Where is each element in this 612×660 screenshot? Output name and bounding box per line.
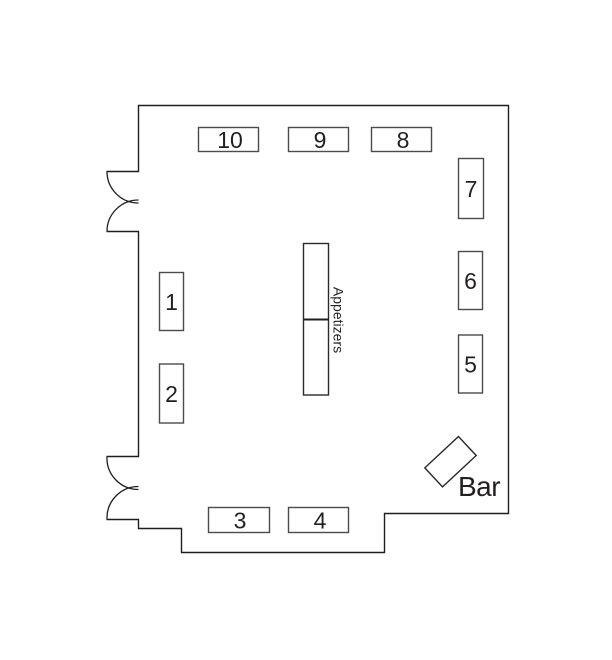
door-lower-left: [107, 457, 139, 520]
door-upper-left-bottom-leaf-arc: [107, 200, 139, 232]
table-7: 7: [459, 159, 484, 219]
table-5-label: 5: [464, 351, 477, 377]
door-upper-left: [107, 172, 139, 232]
floor-plan: 10 9 8 7 6 5 1 2: [0, 0, 612, 660]
table-8: 8: [372, 127, 432, 153]
table-6: 6: [459, 252, 483, 310]
table-10-label: 10: [217, 127, 243, 153]
table-6-label: 6: [464, 268, 477, 294]
door-lower-left-top-leaf-arc: [107, 457, 139, 490]
bar: Bar: [425, 437, 500, 502]
table-1-label: 1: [165, 289, 178, 315]
table-8-label: 8: [397, 127, 410, 153]
table-1: 1: [160, 273, 184, 331]
table-3: 3: [209, 507, 270, 533]
table-2: 2: [160, 364, 184, 423]
door-lower-left-bottom-leaf-arc: [107, 487, 139, 520]
table-5: 5: [459, 335, 483, 393]
table-9-label: 9: [314, 127, 327, 153]
wall-left-mid-segment: [107, 232, 139, 457]
bar-label: Bar: [458, 471, 500, 502]
table-2-label: 2: [165, 381, 178, 407]
appetizers-label: Appetizers: [331, 287, 347, 353]
table-3-label: 3: [234, 507, 247, 533]
table-10: 10: [199, 127, 259, 153]
appetizers-table: Appetizers: [304, 244, 347, 396]
table-4: 4: [289, 507, 349, 533]
table-7-label: 7: [465, 176, 478, 202]
floor-plan-drawing: 10 9 8 7 6 5 1 2: [0, 0, 612, 660]
table-9: 9: [289, 127, 349, 153]
door-upper-left-top-leaf-arc: [107, 172, 139, 204]
table-4-label: 4: [314, 507, 327, 533]
